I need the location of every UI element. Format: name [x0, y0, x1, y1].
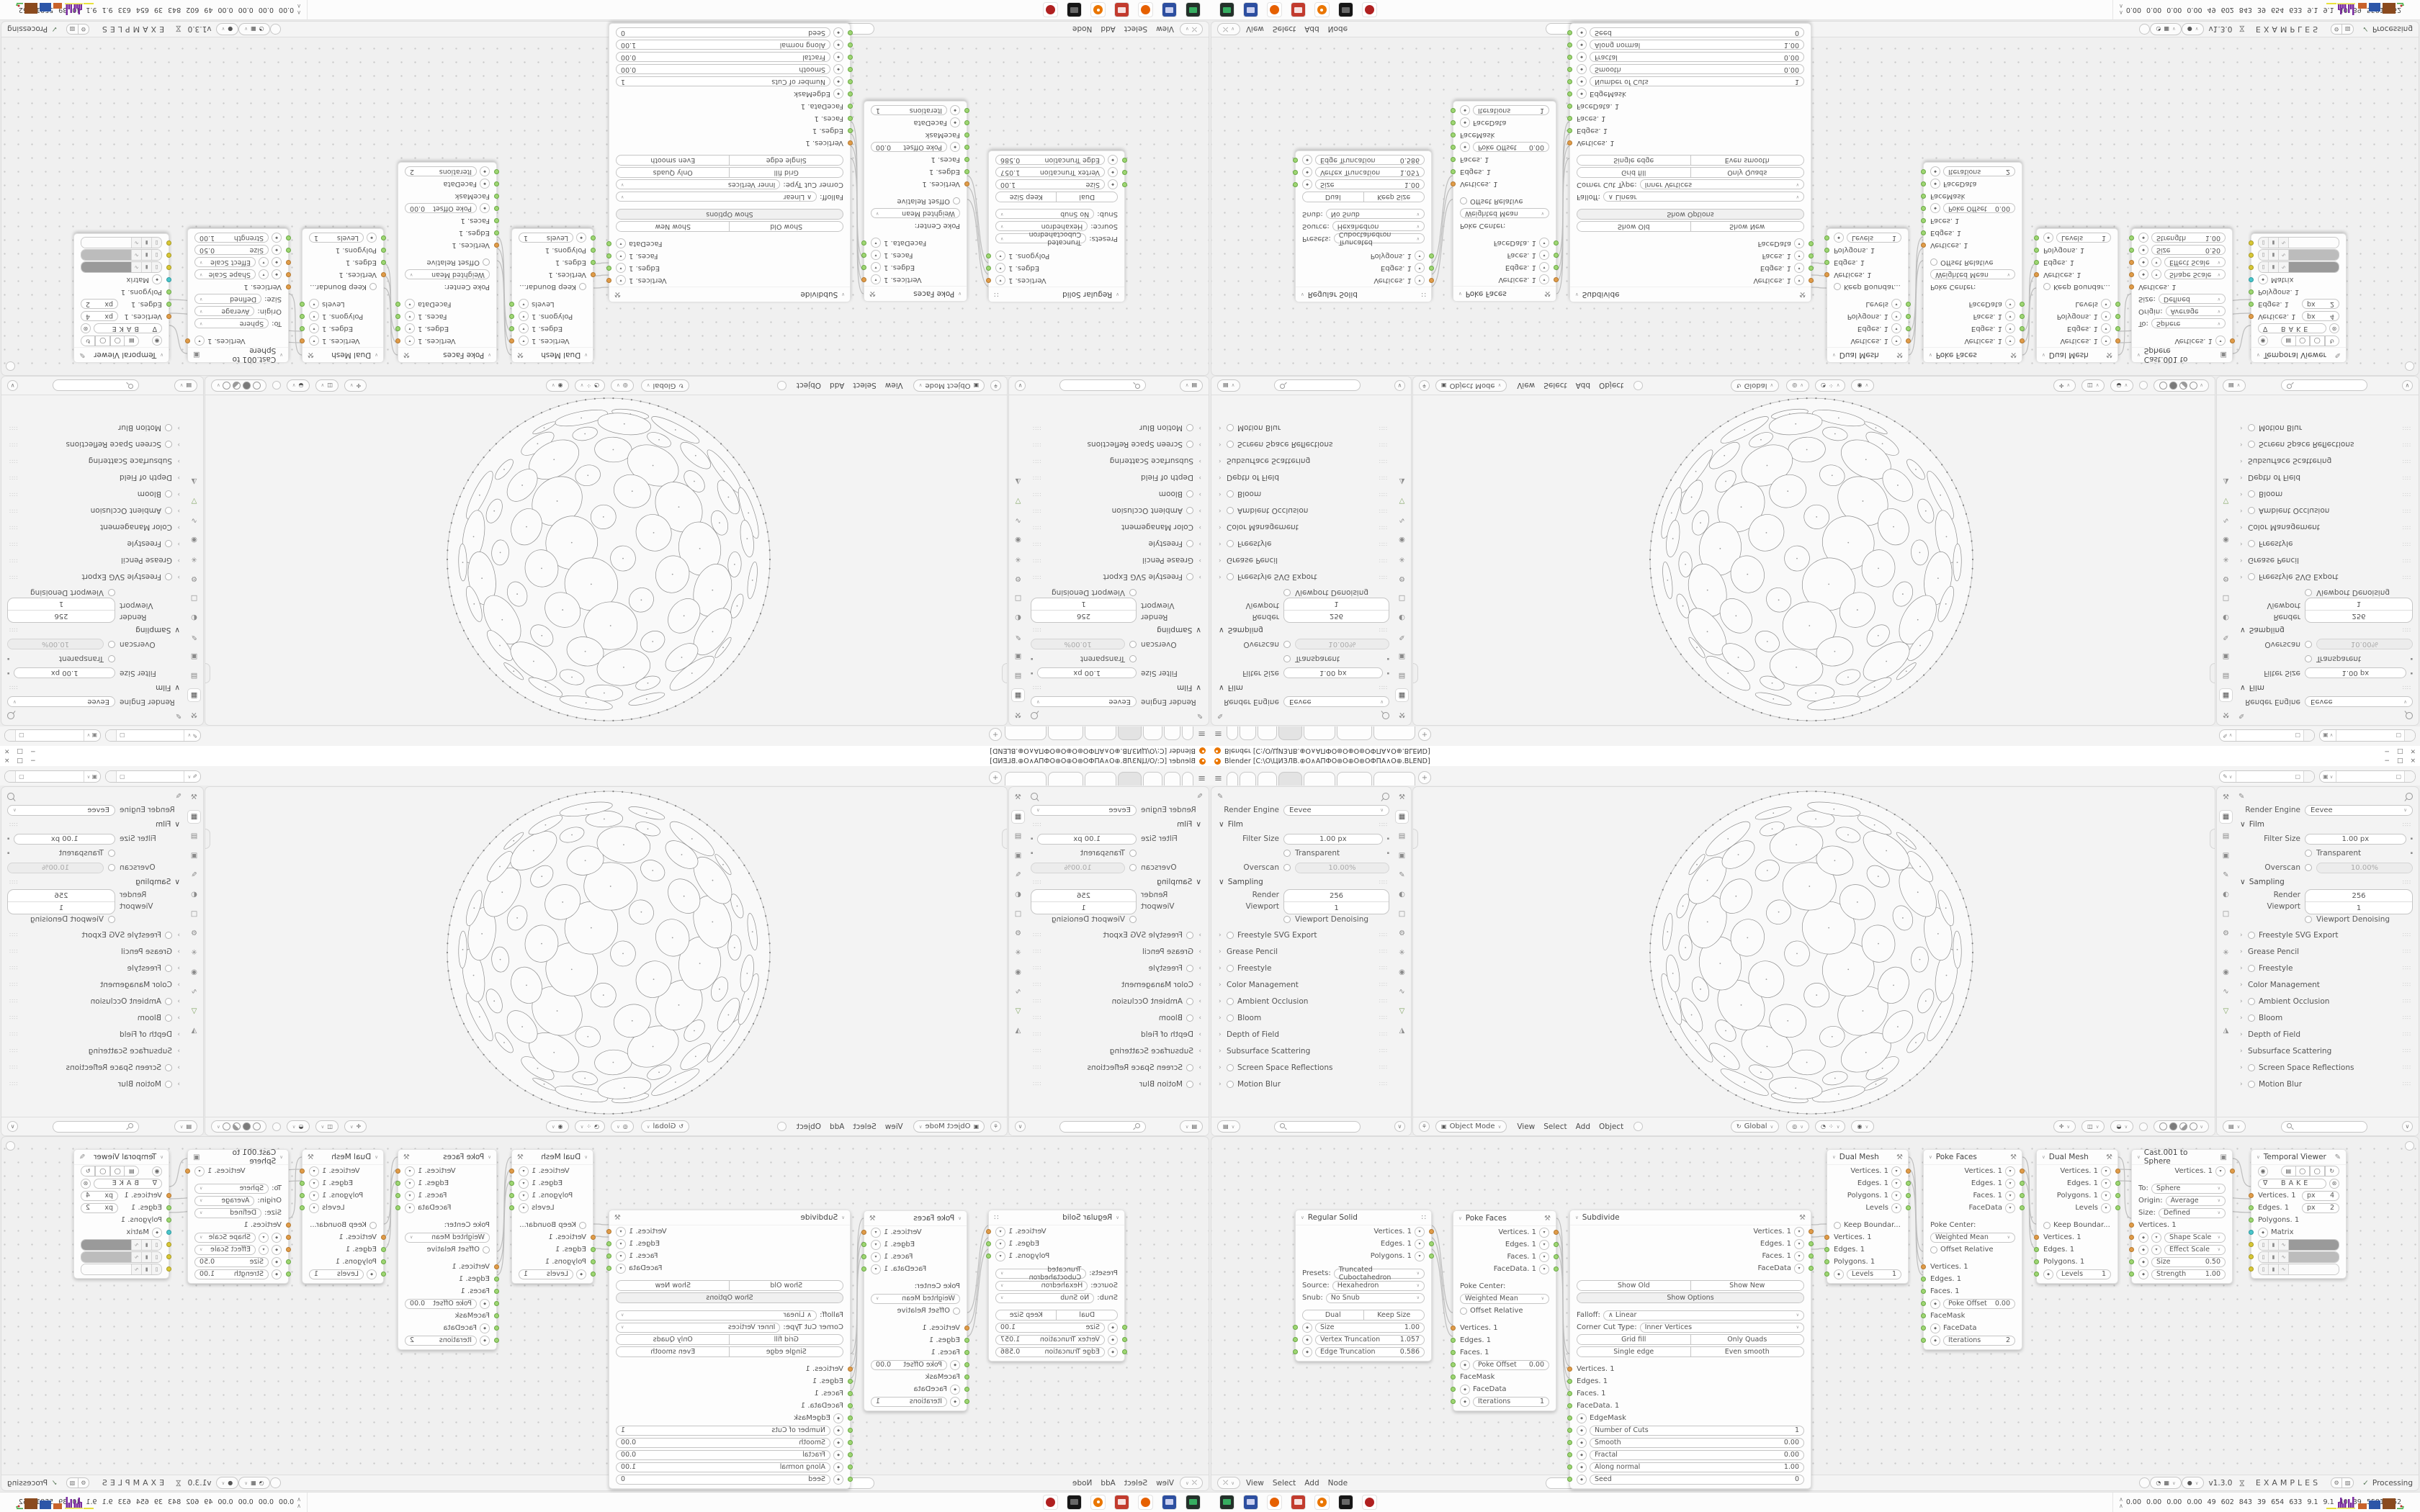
- properties-tab-icon-6[interactable]: □: [1396, 908, 1408, 920]
- socket-vertices-1[interactable]: [1809, 278, 1814, 283]
- node-menu-select[interactable]: Select: [1273, 25, 1296, 34]
- socket-edges-1[interactable]: [606, 1241, 611, 1246]
- socket-effect-scale[interactable]: [286, 260, 291, 265]
- close-button[interactable]: ×: [2410, 757, 2416, 765]
- select-defined[interactable]: Defined∨: [2159, 294, 2226, 305]
- red-badge-icon[interactable]: [1044, 1495, 1057, 1509]
- section-color-management[interactable]: Color Management: [100, 981, 172, 989]
- socket-size[interactable]: [1122, 1325, 1127, 1330]
- section-ambient-occlusion[interactable]: Ambient Occlusion: [2259, 997, 2329, 1006]
- socket-edge-truncation[interactable]: [1293, 158, 1298, 163]
- button-show-new[interactable]: Show New: [616, 1280, 730, 1291]
- button-only-quads[interactable]: Only Quads: [1690, 167, 1805, 178]
- section-motion-blur[interactable]: Motion Blur: [1139, 1080, 1183, 1089]
- viewlayer-selector[interactable]: ▣∨ ▢: [4, 729, 101, 742]
- socket-smooth[interactable]: [848, 67, 853, 72]
- properties-tab-icon-1[interactable]: ▦: [2220, 811, 2232, 823]
- red-box-icon[interactable]: [1291, 1495, 1305, 1509]
- node-poke-faces-left[interactable]: ∨Poke Faces⚒Vertices. 1▾Edges. 1▾Faces. …: [1453, 1210, 1556, 1411]
- socket-vertices-1[interactable]: [964, 1326, 969, 1331]
- shading-mode-buttons[interactable]: ∨: [2154, 379, 2209, 392]
- expand-icon[interactable]: ›: [176, 491, 180, 498]
- section-freestyle-svg-export[interactable]: Freestyle SVG Export: [1237, 573, 1317, 582]
- viewport-menu-object[interactable]: Object: [1599, 382, 1623, 390]
- socket-x[interactable]: [2249, 1266, 2254, 1272]
- field-levels[interactable]: Levels1: [2056, 1269, 2111, 1279]
- viewport-menu-select[interactable]: Select: [1543, 382, 1567, 390]
- socket-edges-1[interactable]: [1921, 1277, 1926, 1282]
- field-edge-truncation[interactable]: Edge Truncation0.586: [995, 156, 1105, 166]
- viewport-menu-add[interactable]: Add: [1576, 1122, 1590, 1131]
- button-even-smooth[interactable]: Even smooth: [616, 1346, 730, 1357]
- link-icon[interactable]: ⊛: [81, 324, 91, 334]
- overscan-checkbox[interactable]: [1283, 641, 1291, 648]
- properties-tab-icon-8[interactable]: ✳: [1012, 947, 1024, 959]
- select-weighted-mean[interactable]: Weighted Mean∨: [1460, 1294, 1549, 1304]
- field-strength[interactable]: Strength1.00: [2151, 1269, 2226, 1279]
- close-button[interactable]: ×: [4, 757, 10, 765]
- socket-facedata[interactable]: [494, 181, 499, 186]
- socket-polygons-1[interactable]: [300, 314, 305, 319]
- socket-faces-1[interactable]: [2020, 314, 2025, 319]
- checkbox-keep-boundar-[interactable]: [369, 284, 377, 291]
- editor-type-select[interactable]: ⤫∨: [1180, 1477, 1203, 1489]
- socket-vertices-1[interactable]: [381, 1235, 386, 1240]
- select-no-snub[interactable]: No Snub∨: [1326, 210, 1425, 220]
- socket-x[interactable]: [166, 1242, 171, 1247]
- section-ambient-occlusion[interactable]: Ambient Occlusion: [91, 997, 161, 1006]
- expand-icon[interactable]: ›: [176, 541, 180, 548]
- properties-tab-icon-9[interactable]: ◉: [1396, 966, 1408, 978]
- node-cast-to-sphere[interactable]: ∨Cast.001 to Sphere▣Vertices. 1▾To:Spher…: [187, 1149, 289, 1284]
- properties-tab-icon-2[interactable]: ▤: [1012, 830, 1024, 842]
- section-depth-of-field[interactable]: Depth of Field: [120, 1030, 172, 1039]
- socket-along-normal[interactable]: [848, 42, 853, 48]
- socket-vertices-1[interactable]: [1906, 338, 1911, 343]
- properties-tab-icon-4[interactable]: ✎: [1396, 869, 1408, 881]
- expand-icon[interactable]: ›: [2240, 491, 2244, 498]
- copy-icon[interactable]: ▢: [117, 730, 128, 741]
- expand-icon[interactable]: ›: [2240, 458, 2244, 465]
- socket-levels[interactable]: [1906, 302, 1911, 307]
- field-size[interactable]: Size1.00: [1315, 180, 1425, 190]
- bake-button[interactable]: ∇BAKE: [94, 1179, 162, 1189]
- select-weighted-mean[interactable]: Weighted Mean∨: [871, 209, 960, 219]
- viewer-mode-icon-0[interactable]: ▤: [2281, 336, 2295, 346]
- section-screen-space-reflections[interactable]: Screen Space Reflections: [66, 1063, 162, 1072]
- node-regular-solid[interactable]: ∨Regular Solid∷Vertices. 1▾Edges. 1▾Poly…: [1295, 1210, 1432, 1362]
- wolf-icon[interactable]: [1067, 3, 1081, 17]
- expand-icon[interactable]: ›: [2240, 1081, 2244, 1088]
- transparent-checkbox[interactable]: [2305, 655, 2312, 662]
- select-weighted-mean[interactable]: Weighted Mean∨: [871, 1294, 960, 1304]
- sidebar-toggle-right[interactable]: [205, 663, 210, 683]
- section-subsurface-scattering[interactable]: Subsurface Scattering: [89, 457, 172, 466]
- grid-icon[interactable]: ▨: [66, 1477, 78, 1488]
- socket-edgemask[interactable]: [1567, 91, 1572, 96]
- swatch-icon-1[interactable]: ▮: [141, 1240, 151, 1250]
- expand-icon[interactable]: ›: [1197, 441, 1201, 449]
- close-button[interactable]: ×: [2410, 747, 2416, 755]
- filter-size-field[interactable]: 1.00 px: [1037, 834, 1137, 845]
- socket-faces-1[interactable]: [1921, 1289, 1926, 1294]
- button-only-quads[interactable]: Only Quads: [1690, 1334, 1805, 1345]
- expand-icon[interactable]: ›: [2240, 932, 2244, 939]
- filter-size-field[interactable]: 1.00 px: [2305, 834, 2406, 845]
- field-fractal[interactable]: Fractal0.00: [616, 1450, 830, 1460]
- orientation-select[interactable]: ↻ Global∨: [1731, 1120, 1779, 1133]
- shading-mode-buttons[interactable]: ∨: [211, 379, 266, 392]
- section-grease-pencil[interactable]: Grease Pencil: [121, 557, 172, 565]
- snap-node-toggle[interactable]: ◔▦∨: [238, 1477, 269, 1489]
- expand-icon[interactable]: ›: [2240, 441, 2244, 449]
- socket-size[interactable]: [2129, 1259, 2134, 1264]
- node-dual-mesh-2[interactable]: ∨Dual Mesh⚒Vertices. 1▾Edges. 1▾Polygons…: [302, 228, 384, 363]
- section-depth-of-field[interactable]: Depth of Field: [1141, 474, 1193, 482]
- snap-node-toggle[interactable]: ◔▦∨: [2150, 1477, 2181, 1489]
- socket-strength[interactable]: [2129, 1272, 2134, 1277]
- socket-size[interactable]: [286, 1259, 291, 1264]
- socket-vertices-1[interactable]: [606, 278, 611, 283]
- bloom-checkbox[interactable]: [1227, 491, 1234, 498]
- render-preview-circle[interactable]: [272, 382, 281, 390]
- render-engine-select[interactable]: Eevee∨: [1283, 697, 1389, 708]
- socket-edges-1[interactable]: [381, 1247, 386, 1252]
- properties-tab-icon-5[interactable]: ◐: [188, 611, 200, 624]
- scene-selector[interactable]: ✎∨ ▢: [105, 729, 201, 742]
- socket-vertices-1[interactable]: [300, 1169, 305, 1174]
- swatch-icon-1[interactable]: ▮: [141, 1252, 151, 1262]
- field-poke-offset[interactable]: Poke Offset0.00: [1473, 143, 1549, 153]
- expand-icon[interactable]: ›: [1219, 458, 1223, 465]
- viewport-menu-view[interactable]: View: [885, 1122, 903, 1131]
- properties-tab-icon-2[interactable]: ▤: [1012, 670, 1024, 682]
- node-menu-node[interactable]: Node: [1328, 25, 1348, 34]
- socket-vertices-1[interactable]: [1921, 1264, 1926, 1269]
- properties-tab-icon-5[interactable]: ◐: [1396, 611, 1408, 624]
- mode-select[interactable]: ▣ Object Mode∨: [913, 1120, 985, 1133]
- field-fractal[interactable]: Fractal0.00: [1590, 1450, 1804, 1460]
- screen-space-reflections-checkbox[interactable]: [2248, 441, 2255, 449]
- field-levels[interactable]: Levels1: [309, 233, 364, 243]
- socket-levels[interactable]: [509, 1205, 514, 1210]
- expand-icon[interactable]: ›: [176, 508, 180, 515]
- expand-icon[interactable]: ›: [2240, 998, 2244, 1005]
- expand-icon[interactable]: ›: [1219, 574, 1223, 581]
- section-freestyle-svg-export[interactable]: Freestyle SVG Export: [2259, 573, 2339, 582]
- section-freestyle-svg-export[interactable]: Freestyle SVG Export: [82, 573, 162, 582]
- field-iterations[interactable]: Iterations1: [1473, 106, 1549, 116]
- socket-vertices-1[interactable]: [509, 338, 514, 343]
- node-regular-solid[interactable]: ∨Regular Solid∷Vertices. 1▾Edges. 1▾Poly…: [988, 150, 1125, 302]
- socket-facemask[interactable]: [1921, 194, 1926, 199]
- collapse-icon[interactable]: ∨: [174, 878, 180, 886]
- collapse-icon[interactable]: ∨: [1219, 878, 1224, 886]
- expand-icon[interactable]: ›: [176, 441, 180, 449]
- workspace-tab-7[interactable]: [1005, 726, 1047, 740]
- blank-circle-button[interactable]: [2139, 1477, 2150, 1488]
- socket-edgemask[interactable]: [848, 91, 853, 96]
- swatch-icon-1[interactable]: ▮: [2269, 1252, 2279, 1262]
- socket-vertices-1[interactable]: [509, 1169, 514, 1174]
- expand-icon[interactable]: ›: [176, 932, 180, 939]
- editor-type-icon[interactable]: ⚘: [1419, 1121, 1430, 1132]
- samples-fields[interactable]: 2561: [2305, 598, 2413, 623]
- socket-iterations[interactable]: [964, 108, 969, 113]
- shading-dropdown[interactable]: ◒∨: [2110, 379, 2133, 392]
- node-menu-add[interactable]: Add: [1101, 1479, 1115, 1488]
- options-dropdown-button[interactable]: ∨: [1015, 1121, 1026, 1132]
- expand-icon[interactable]: ›: [1197, 1031, 1201, 1038]
- socket-polygons-1[interactable]: [1429, 253, 1434, 258]
- node-dual-mesh-2[interactable]: ∨Dual Mesh⚒Vertices. 1▾Edges. 1▾Polygons…: [2036, 228, 2118, 363]
- freestyle-checkbox[interactable]: [2248, 541, 2255, 548]
- node-menu-view[interactable]: View: [1246, 25, 1264, 34]
- section-subsurface-scattering[interactable]: Subsurface Scattering: [1227, 1047, 1310, 1056]
- expand-icon[interactable]: ›: [2240, 1048, 2244, 1055]
- transparent-checkbox[interactable]: [1129, 655, 1137, 662]
- viewport-menu-add[interactable]: Add: [1576, 382, 1590, 390]
- socket-edges-1[interactable]: [2115, 326, 2120, 331]
- samples-fields[interactable]: 2561: [1031, 598, 1137, 623]
- snap-node-toggle[interactable]: ◔▦∨: [238, 23, 269, 35]
- swatch-icon-1[interactable]: ▮: [2269, 263, 2279, 273]
- screen-space-reflections-checkbox[interactable]: [165, 1064, 172, 1071]
- node-dual-mesh-2[interactable]: ∨Dual Mesh⚒Vertices. 1▾Edges. 1▾Polygons…: [2036, 1149, 2118, 1284]
- editor-type-select[interactable]: ⤫∨: [1217, 1477, 1240, 1489]
- viewlayer-name-field[interactable]: [2336, 771, 2393, 782]
- socket-matrix[interactable]: [166, 277, 171, 282]
- select-inner-vertices[interactable]: Inner Vertices∨: [1640, 1323, 1804, 1333]
- options-dropdown-button[interactable]: ∨: [1394, 380, 1405, 391]
- section-freestyle-svg-export[interactable]: Freestyle SVG Export: [2259, 931, 2339, 940]
- socket-facedata-1[interactable]: [1567, 1403, 1572, 1408]
- workspace-tab-7[interactable]: [1005, 772, 1047, 786]
- color-ramp-bar[interactable]: ▯▮∿: [2258, 1251, 2339, 1263]
- socket-edges-1[interactable]: [1567, 1379, 1572, 1384]
- wireframe-sphere-icon[interactable]: [253, 1122, 261, 1130]
- snap-toggle[interactable]: ◎∨: [611, 1120, 634, 1133]
- socket-size[interactable]: [1293, 182, 1298, 187]
- swatch-icon-2[interactable]: ∿: [2279, 1264, 2289, 1274]
- node-poke-faces-right[interactable]: ∨Poke Faces⚒Vertices. 1▾Edges. 1▾Faces. …: [398, 1149, 497, 1350]
- grid-icon[interactable]: ▨: [2342, 1477, 2354, 1488]
- section-depth-of-field[interactable]: Depth of Field: [1227, 1030, 1279, 1039]
- px-field[interactable]: px4: [2302, 1191, 2339, 1201]
- socket-polygons-1[interactable]: [381, 248, 386, 253]
- socket-vertices-1[interactable]: [1451, 181, 1456, 186]
- color-ramp-bar[interactable]: ▯▮∿: [2258, 262, 2339, 274]
- field-levels[interactable]: Levels1: [519, 233, 573, 243]
- socket-levels[interactable]: [2115, 302, 2120, 307]
- field-number-of-cuts[interactable]: Number of Cuts1: [1590, 77, 1804, 87]
- wolf-icon[interactable]: [1339, 3, 1353, 17]
- button-keep-size[interactable]: Keep Size: [995, 1310, 1057, 1320]
- gear-icon[interactable]: ⚙: [78, 1477, 89, 1488]
- section-depth-of-field[interactable]: Depth of Field: [1141, 1030, 1193, 1039]
- filter-size-field[interactable]: 1.00 px: [1037, 668, 1137, 679]
- collapse-icon[interactable]: ∨: [174, 626, 180, 634]
- socket-number-of-cuts[interactable]: [1567, 1428, 1572, 1433]
- scene-selector[interactable]: ✎∨ ▢: [2219, 729, 2315, 742]
- options-dropdown-button[interactable]: ∨: [1394, 1121, 1405, 1132]
- expand-icon[interactable]: ›: [2240, 541, 2244, 548]
- socket-faces-1[interactable]: [494, 1289, 499, 1294]
- shading-dropdown[interactable]: ◒∨: [2110, 1120, 2133, 1133]
- expand-icon[interactable]: ›: [1219, 1048, 1223, 1055]
- socket-edgemask[interactable]: [1567, 1416, 1572, 1421]
- button-show-new[interactable]: Show New: [616, 221, 730, 232]
- properties-tab-icon-9[interactable]: ◉: [2220, 966, 2232, 978]
- socket-faces-1[interactable]: [606, 253, 611, 258]
- socket-polygons-1[interactable]: [166, 289, 171, 294]
- properties-tab-icon-1[interactable]: ▦: [188, 689, 200, 701]
- properties-tab-icon-0[interactable]: ⚒: [188, 708, 200, 721]
- socket-faces-1[interactable]: [395, 314, 400, 319]
- socket-fractal[interactable]: [848, 55, 853, 60]
- socket-edges-1[interactable]: [2020, 326, 2025, 331]
- node-poke-faces-right[interactable]: ∨Poke Faces⚒Vertices. 1▾Edges. 1▾Faces. …: [1923, 162, 2022, 363]
- section-bloom[interactable]: Bloom: [2259, 1014, 2282, 1022]
- socket-size[interactable]: [286, 248, 291, 253]
- blender-icon[interactable]: [1315, 3, 1329, 17]
- expand-icon[interactable]: ›: [1197, 574, 1201, 581]
- socket-along-normal[interactable]: [1567, 1464, 1572, 1470]
- checkbox-keep-boundar-[interactable]: [2043, 284, 2051, 291]
- sidebar-toggle-right[interactable]: [2210, 829, 2215, 849]
- properties-tab-icon-2[interactable]: ▤: [188, 670, 200, 682]
- pin-icon[interactable]: [2404, 711, 2414, 721]
- properties-tab-icon-7[interactable]: ⚙: [1012, 572, 1024, 585]
- socket-polygons-1[interactable]: [591, 248, 596, 253]
- properties-tab-icon-12[interactable]: ◮: [2220, 475, 2232, 487]
- socket-vertices-1[interactable]: [2020, 1169, 2025, 1174]
- render-engine-select[interactable]: Eevee∨: [1031, 805, 1137, 816]
- section-motion-blur[interactable]: Motion Blur: [1237, 1080, 1281, 1089]
- properties-editor-type-select[interactable]: ▤∨: [1217, 1120, 1240, 1133]
- socket-vertices-1[interactable]: [986, 278, 991, 283]
- socket-edges-1[interactable]: [964, 1338, 969, 1343]
- rendered-sphere-icon[interactable]: [223, 382, 230, 390]
- workspace-tab-1[interactable]: [1182, 772, 1193, 786]
- field-vertex-truncation[interactable]: Vertex Truncation1.057: [995, 168, 1105, 178]
- socket-smooth[interactable]: [848, 1440, 853, 1445]
- swatch-icon-0[interactable]: ▯: [151, 1252, 161, 1262]
- copy-icon[interactable]: ▢: [2293, 730, 2304, 741]
- select-hexahedron[interactable]: Hexahedron∨: [1332, 1281, 1425, 1291]
- processing-label[interactable]: Processing: [7, 1479, 48, 1488]
- viewport-denoising-checkbox[interactable]: [1283, 916, 1291, 923]
- socket-shape-scale[interactable]: [2129, 272, 2134, 277]
- properties-tab-icon-5[interactable]: ◐: [188, 888, 200, 901]
- socket-iterations[interactable]: [1921, 1338, 1926, 1343]
- console-icon[interactable]: [1186, 3, 1200, 17]
- motion-blur-checkbox[interactable]: [1227, 1081, 1234, 1088]
- socket-poke-offset[interactable]: [1921, 1301, 1926, 1306]
- ambient-occlusion-checkbox[interactable]: [1186, 508, 1193, 515]
- properties-search-input[interactable]: [53, 1121, 139, 1133]
- checkbox-offset-relative[interactable]: [953, 198, 960, 205]
- filter-size-field[interactable]: 1.00 px: [14, 834, 115, 845]
- button-show-old[interactable]: Show Old: [1577, 1280, 1690, 1291]
- filter-circle-button[interactable]: [777, 1122, 786, 1131]
- transparent-checkbox[interactable]: [1283, 850, 1291, 857]
- properties-search-input[interactable]: [2281, 1121, 2367, 1133]
- properties-tab-icon-12[interactable]: ◮: [1012, 1025, 1024, 1037]
- expand-icon[interactable]: ›: [2240, 508, 2244, 515]
- properties-tab-icon-10[interactable]: ∿: [188, 514, 200, 526]
- field-size[interactable]: Size1.00: [1315, 1323, 1425, 1333]
- properties-tab-icon-2[interactable]: ▤: [1396, 670, 1408, 682]
- red-box-icon[interactable]: [1115, 1495, 1129, 1509]
- expand-icon[interactable]: ›: [1197, 932, 1201, 939]
- expand-icon[interactable]: ›: [2240, 981, 2244, 989]
- overscan-field[interactable]: 10.00%: [2316, 639, 2413, 650]
- workspace-tab-7[interactable]: [1373, 726, 1415, 740]
- collapse-icon[interactable]: ∨: [2240, 683, 2246, 692]
- properties-tab-icon-12[interactable]: ◮: [188, 1025, 200, 1037]
- properties-tab-icon-7[interactable]: ⚙: [188, 572, 200, 585]
- socket-facemask[interactable]: [1451, 132, 1456, 138]
- overscan-checkbox[interactable]: [108, 641, 115, 648]
- expand-icon[interactable]: ›: [1219, 541, 1223, 548]
- orientation-select[interactable]: ↻ Global∨: [641, 379, 689, 392]
- socket-polygons-1[interactable]: [591, 1259, 596, 1264]
- options-dropdown-button[interactable]: ∨: [7, 1121, 18, 1132]
- socket-edges-1[interactable]: [2249, 302, 2254, 307]
- bloom-checkbox[interactable]: [2248, 491, 2255, 498]
- swatch-icon-2[interactable]: ∿: [2279, 1252, 2289, 1262]
- blank-circle-button[interactable]: [270, 24, 281, 35]
- socket-polygons-1[interactable]: [166, 1218, 171, 1223]
- transparent-checkbox[interactable]: [1129, 850, 1137, 857]
- properties-tab-icon-11[interactable]: ▽: [1396, 495, 1408, 507]
- viewport-menu-view[interactable]: View: [1517, 1122, 1535, 1131]
- wireframe-sphere-icon[interactable]: [253, 382, 261, 390]
- socket-facedata[interactable]: [2020, 302, 2025, 307]
- field-iterations[interactable]: Iterations2: [405, 167, 477, 177]
- socket-matrix[interactable]: [166, 1230, 171, 1235]
- copy-icon[interactable]: ▢: [16, 771, 27, 782]
- field-vertex-truncation[interactable]: Vertex Truncation1.057: [1315, 1335, 1425, 1345]
- button-show-options[interactable]: Show Options: [1577, 209, 1804, 220]
- collapse-icon[interactable]: ∨: [1219, 626, 1224, 634]
- node-menu-add[interactable]: Add: [1304, 1479, 1319, 1488]
- proportional-edit-toggle[interactable]: ◔⁘∨: [1815, 379, 1845, 392]
- socket-facedata[interactable]: [964, 120, 969, 125]
- socket-faces-1[interactable]: [861, 1254, 866, 1259]
- socket-edges-1[interactable]: [2034, 260, 2039, 265]
- properties-tab-icon-0[interactable]: ⚒: [188, 791, 200, 804]
- socket-edges-1[interactable]: [300, 326, 305, 331]
- field-levels[interactable]: Levels1: [1847, 233, 1901, 243]
- overscan-checkbox[interactable]: [1129, 864, 1137, 871]
- properties-tab-icon-9[interactable]: ◉: [1012, 966, 1024, 978]
- field-seed[interactable]: Seed0: [616, 1475, 830, 1485]
- socket-number-of-cuts[interactable]: [848, 1428, 853, 1433]
- expand-icon[interactable]: ›: [1219, 1064, 1223, 1071]
- expand-icon[interactable]: ›: [1219, 932, 1223, 939]
- section-subsurface-scattering[interactable]: Subsurface Scattering: [2248, 457, 2331, 466]
- node-menu-node[interactable]: Node: [1328, 1479, 1348, 1488]
- button-show-options[interactable]: Show Options: [616, 1292, 843, 1303]
- section-grease-pencil[interactable]: Grease Pencil: [2248, 948, 2299, 956]
- socket-polygons-1[interactable]: [509, 1193, 514, 1198]
- button-dual[interactable]: Dual: [1302, 192, 1363, 202]
- socket-faces-1[interactable]: [964, 157, 969, 162]
- collapse-icon[interactable]: ∨: [2240, 626, 2246, 634]
- expand-icon[interactable]: ›: [2240, 425, 2244, 432]
